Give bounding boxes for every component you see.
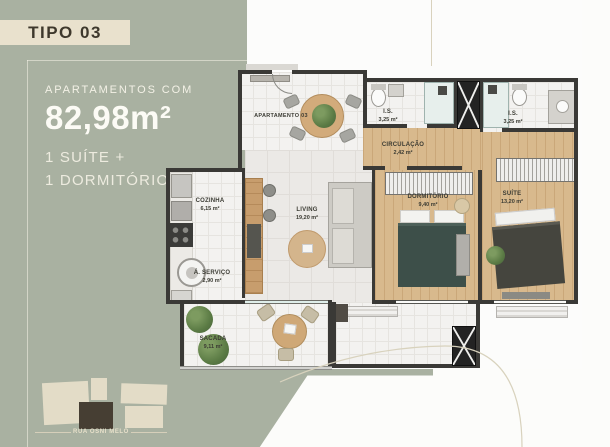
pillow [400,210,430,223]
sofa-cushion [332,228,354,264]
decorative-frame-line-horizontal [27,60,247,61]
hall-hatch [340,306,398,317]
room-label-a-servico: Á. SERVIÇO2,90 m² [194,270,231,284]
wall [166,300,245,304]
decorative-frame-line-vertical [27,60,28,447]
oven [171,201,192,221]
keyplan-unit-highlight [79,402,113,429]
room-label-is-1: I.S.3,25 m² [379,109,398,123]
balcony-plant [186,306,213,333]
room-label-dormitorio: DORMITÓRIO9,40 m² [408,194,449,208]
balcony-tray [283,323,296,335]
keyplan-building-wing [125,406,163,428]
wall [363,70,367,128]
unit-label: APARTAMENTO 03 [254,113,308,119]
toilet-tank [512,84,527,90]
bed-bench [502,292,550,299]
room-label-living: LIVING19,20 m² [296,207,318,221]
balcony-sliding-door [245,300,328,304]
cooktop [168,223,193,247]
toilet [512,88,527,106]
condenser-area [496,306,568,318]
floor-plan: APARTAMENTO 03 COZINHA6,15 m² Á. SERVIÇO… [166,62,582,372]
wardrobe [385,172,473,195]
page-title: TIPO 03 [28,23,102,43]
site-keyplan: RUA OSNI MELO [35,372,167,440]
room-label-sacada: SACADA9,11 m² [200,336,227,350]
table-plant [312,104,336,128]
shower-head [438,86,447,95]
wall [238,70,242,172]
room-label-cozinha: COZINHA6,15 m² [196,198,225,212]
tv-unit [247,224,261,258]
keyplan-building-wing [121,383,168,405]
page: TIPO 03 APARTAMENTOS COM 82,98m² 1 SUÍTE… [0,0,610,447]
wall [372,300,396,304]
coffee-table-tray [302,244,313,253]
wall [372,170,375,302]
pouf [454,198,470,214]
bar-stool [263,209,276,222]
wall [180,300,184,366]
wall [574,78,578,304]
hall-door [334,304,348,322]
fridge [171,174,192,198]
wall [502,128,578,132]
wall [427,124,457,128]
room-label-circulacao: CIRCULAÇÃO2,42 m² [382,142,424,156]
basin [556,100,569,113]
street-line [35,432,71,433]
duct-shaft [457,81,480,129]
wall [292,70,367,74]
wall [363,124,407,128]
decorative-accent-line-top [431,0,432,66]
dormitory-window [396,300,468,304]
vanity [388,84,404,97]
street-name: RUA OSNI MELO [73,429,129,435]
wardrobe [496,158,575,182]
sofa-cushion [332,188,354,224]
room-label-is-2: I.S.3,25 m² [504,111,523,125]
wall [478,170,482,302]
title-band: TIPO 03 [0,20,130,45]
wall [166,168,170,304]
suite-plant [486,246,505,265]
shower-head [488,85,497,94]
room-label-suite: SUÍTE13,20 m² [501,191,523,205]
wall [468,300,494,304]
wall [480,78,483,132]
toilet [371,88,386,107]
wall [238,70,272,74]
dresser [456,234,470,276]
bar-stool [263,184,276,197]
wall [242,168,245,298]
street-line [131,432,167,433]
wall [566,300,578,304]
wall [166,168,242,172]
keyplan-building-wing [91,378,107,400]
toilet-tank [371,84,386,90]
suite-window [494,300,566,304]
decorative-curve [250,335,530,447]
wall [407,166,462,170]
